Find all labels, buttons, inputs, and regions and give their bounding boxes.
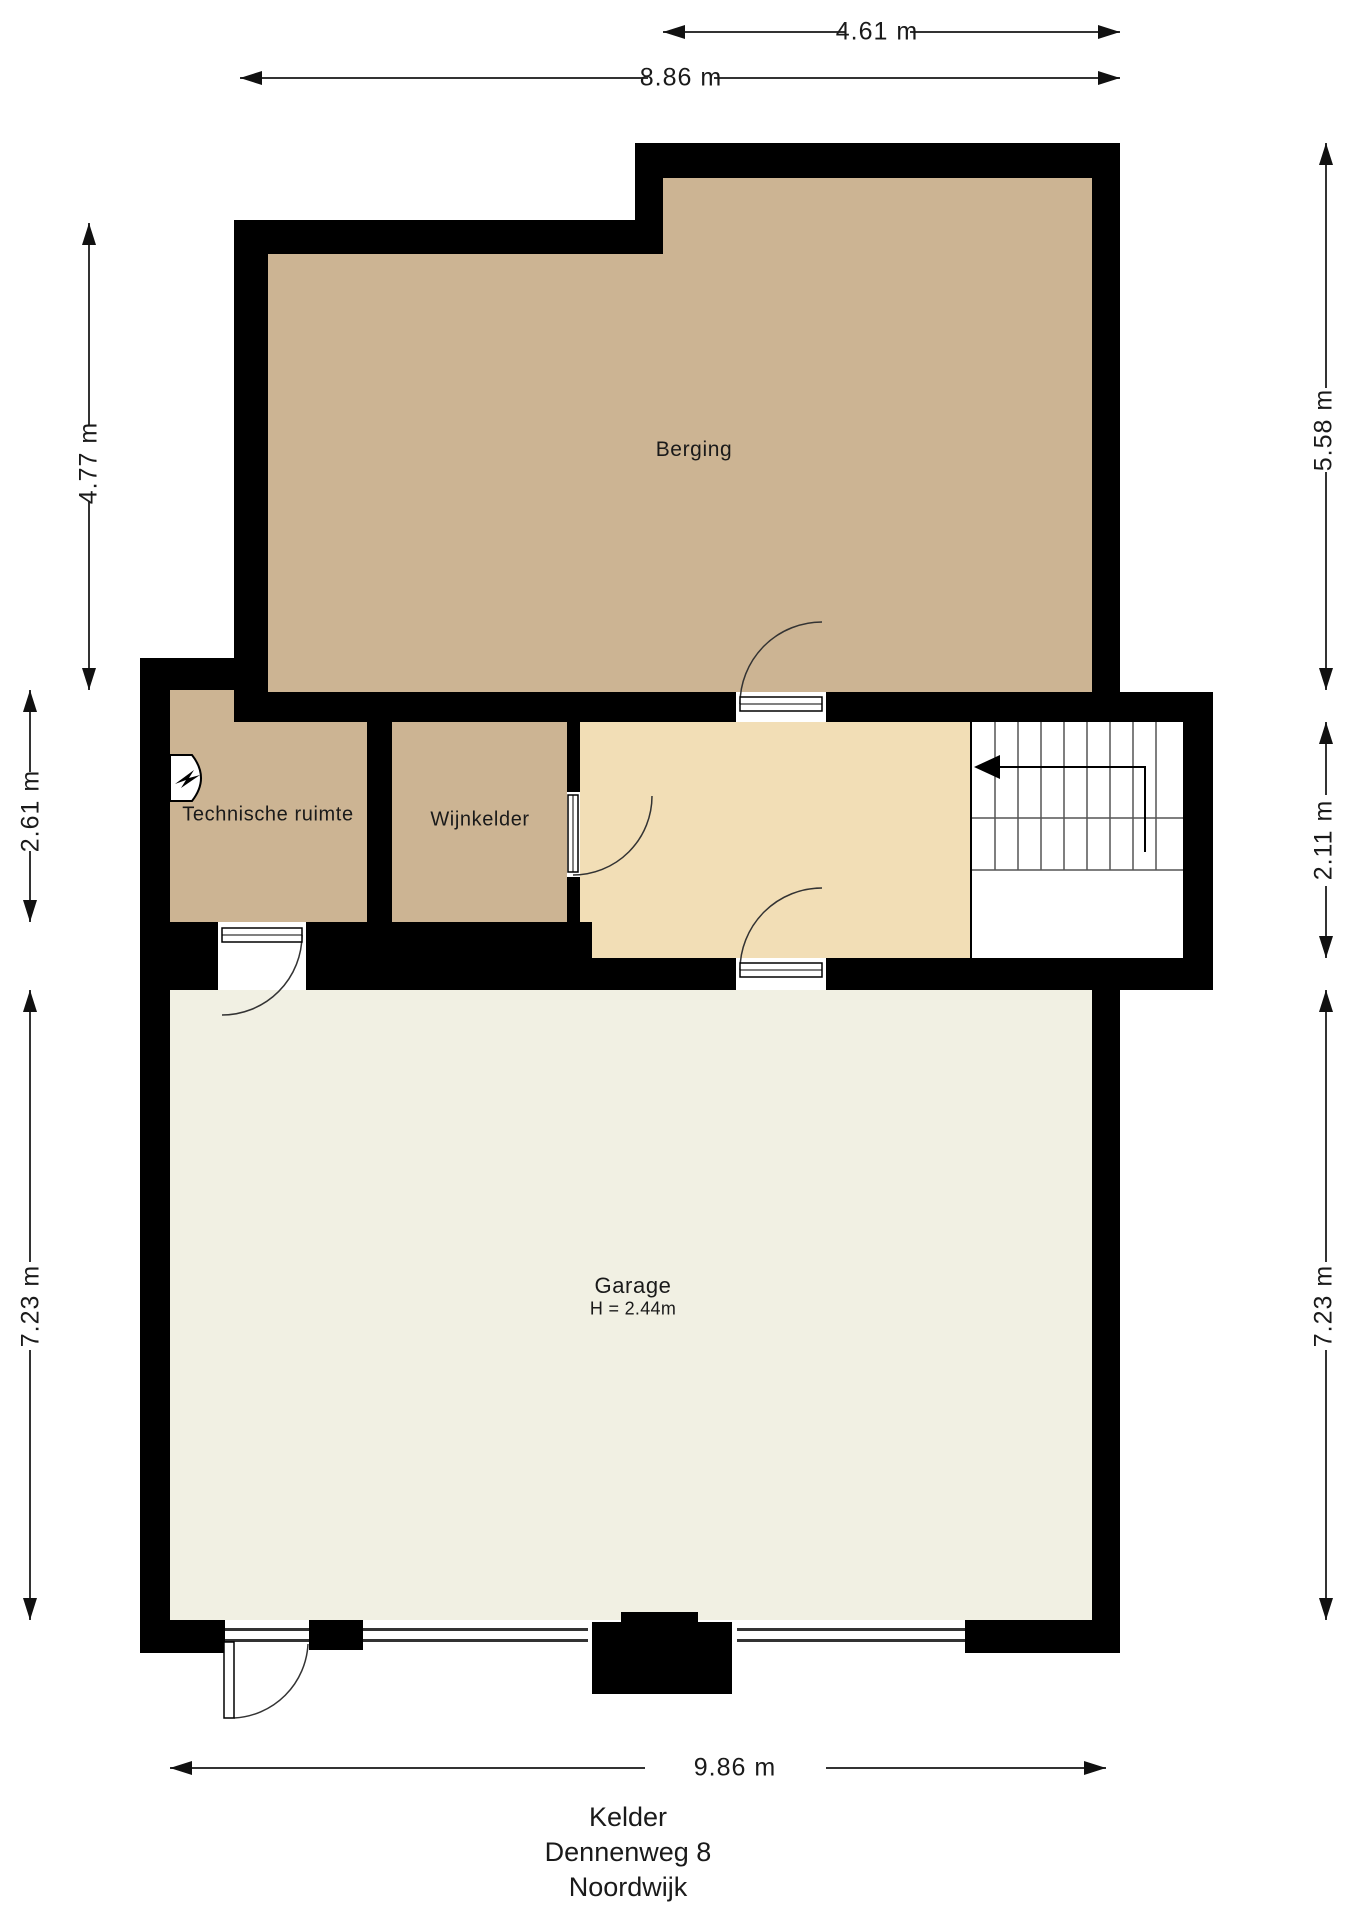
room-label-technische-ruimte: Technische ruimte: [182, 804, 353, 827]
garage-window-right: [737, 1620, 965, 1650]
dimension-label-top-full-width: 8.86 m: [640, 64, 722, 93]
room-floors: [170, 178, 1183, 1620]
floorplan-canvas: Berging Technische ruimte Wijnkelder Gar…: [0, 0, 1358, 1920]
dimension-label-bottom-garage-width: 9.86 m: [694, 1754, 776, 1783]
plan-title-city: Noordwijk: [428, 1870, 828, 1905]
dimension-label-right-stairs-height: 2.11 m: [1310, 800, 1339, 881]
plan-title: Kelder Dennenweg 8 Noordwijk: [428, 1800, 828, 1905]
dimension-label-left-berging-height: 4.77 m: [75, 422, 104, 504]
boiler-icon: [170, 755, 201, 801]
garage-window-left: [363, 1620, 588, 1650]
room-label-wijnkelder: Wijnkelder: [430, 809, 529, 832]
plan-title-street: Dennenweg 8: [428, 1835, 828, 1870]
dimension-label-right-berging-height: 5.58 m: [1310, 389, 1339, 471]
room-label-berging: Berging: [656, 438, 733, 462]
stairwell-floor: [972, 722, 1183, 958]
floorplan-drawing: [0, 0, 1358, 1920]
door-garage-exterior: [224, 1620, 309, 1718]
dimension-label-top-right-width: 4.61 m: [836, 18, 918, 47]
room-berging-floor: [268, 178, 1092, 692]
room-label-garage-height: H = 2.44m: [590, 1299, 676, 1320]
plan-title-level: Kelder: [428, 1800, 828, 1835]
room-label-garage: Garage: [595, 1273, 672, 1299]
dimension-label-right-garage-height: 7.23 m: [1310, 1265, 1339, 1347]
dimension-label-left-garage-height: 7.23 m: [17, 1265, 46, 1347]
dimension-label-left-middle-height: 2.61 m: [17, 770, 46, 852]
